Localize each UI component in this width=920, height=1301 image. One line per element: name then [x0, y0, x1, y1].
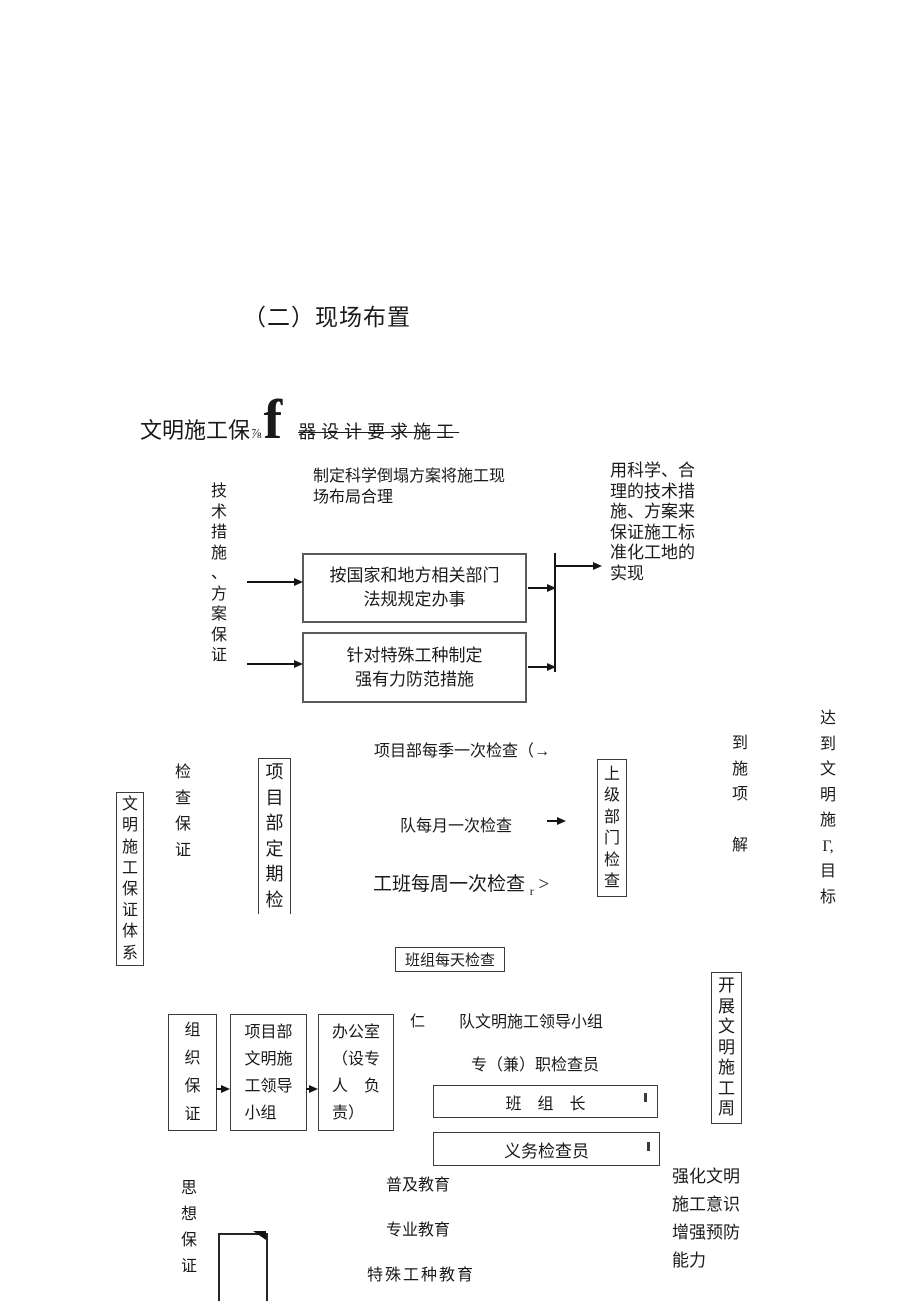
leader-group-box: 项目部 文明施 工领导 小组	[230, 1014, 307, 1131]
mark	[647, 1142, 650, 1151]
weekly-subscript: r	[530, 884, 534, 898]
daily-check-box: 班组每天检查	[395, 947, 505, 972]
effect-text: 强化文明 施工意识 增强预防 能力	[672, 1163, 740, 1275]
tech-side-label: 技 术 措 施 、 方 案 保 证	[207, 482, 231, 667]
office-box: 办公室 （设专 人 负 责）	[318, 1014, 394, 1131]
caption-main: 文明施工保	[140, 413, 250, 445]
check-side-label: 检 查 保 证	[172, 760, 194, 864]
edu-side-label: 思 想 保 证	[178, 1176, 200, 1280]
arrow-org-2	[306, 1088, 309, 1090]
tech-note: 制定科学倒塌方案将施工现 场布局合理	[313, 466, 505, 508]
tech-box-regulations: 按国家和地方相关部门 法规规定办事	[302, 553, 527, 623]
arrow-org-1	[216, 1088, 221, 1090]
weekly-label: 工班每周一次检查	[373, 874, 525, 895]
mark	[644, 1093, 647, 1102]
arrow-to-box1	[247, 581, 294, 583]
arrow-monthly	[547, 820, 557, 822]
caption-strike-text: 器设计要求施工	[298, 418, 459, 444]
edu-item-special: 特殊工种教育	[367, 1261, 475, 1285]
monthly-check-text: 队每月一次检查	[400, 812, 512, 836]
foreman-box: 班 组 长	[433, 1085, 658, 1118]
document-page: （二）现场布置 文明施工保 ⅞ f 器设计要求施工 制定科学倒塌方案将施工现 场…	[0, 0, 920, 1301]
upper-dept-box: 上 级 部 门 检 查	[597, 759, 627, 897]
merge-line	[554, 553, 556, 672]
arrow-to-box2	[247, 663, 294, 665]
edu-open-box	[218, 1233, 268, 1301]
volunteer-inspector-box: 义务检查员	[433, 1132, 660, 1166]
figure-caption: 文明施工保 ⅞ f 器设计要求施工	[140, 398, 459, 445]
caption-glyph: f	[264, 398, 283, 443]
edu-item-professional: 专业教育	[386, 1216, 450, 1240]
weekly-angle: >	[539, 874, 550, 895]
office-label: 办公室 （设专 人 负 责）	[332, 1019, 380, 1127]
mid-note-column: 到 施 项 解	[728, 731, 752, 859]
team-leading-group-text: 队文明施工领导小组	[459, 1008, 603, 1032]
arrow-box2-out	[528, 666, 547, 668]
stray-char: 仁	[410, 1010, 425, 1031]
tech-box-special-trades: 针对特殊工种制定 强有力防范措施	[302, 632, 527, 703]
quarterly-check-text: 项目部每季一次检查（→	[374, 737, 550, 761]
leader-group-label: 项目部 文明施 工领导 小组	[244, 1019, 292, 1127]
org-guarantee-box: 组 织 保 证	[168, 1014, 217, 1131]
civilized-week-box: 开 展 文 明 施 工 周	[711, 972, 742, 1124]
section-title: （二）现场布置	[243, 298, 411, 332]
system-title-box: 文 明 施 工 保 证 体 系	[116, 792, 144, 966]
goal-column: 达 到 文 明 施 Γ, 目 标	[814, 706, 842, 910]
inspector-text: 专（兼）职检查员	[471, 1051, 599, 1075]
weekly-check-text: 工班每周一次检查 r >	[373, 869, 549, 899]
edu-item-general: 普及教育	[386, 1171, 450, 1195]
arrow-box1-out	[528, 587, 547, 589]
corner-arrowhead	[253, 1231, 266, 1240]
periodic-check-box: 项 目 部 定 期 检	[258, 758, 291, 914]
tech-result-text: 用科学、合 理的技术措 施、方案来 保证施工标 准化工地的 实现	[610, 461, 695, 584]
arrow-to-result	[556, 565, 593, 567]
caption-fraction: ⅞	[251, 427, 262, 443]
